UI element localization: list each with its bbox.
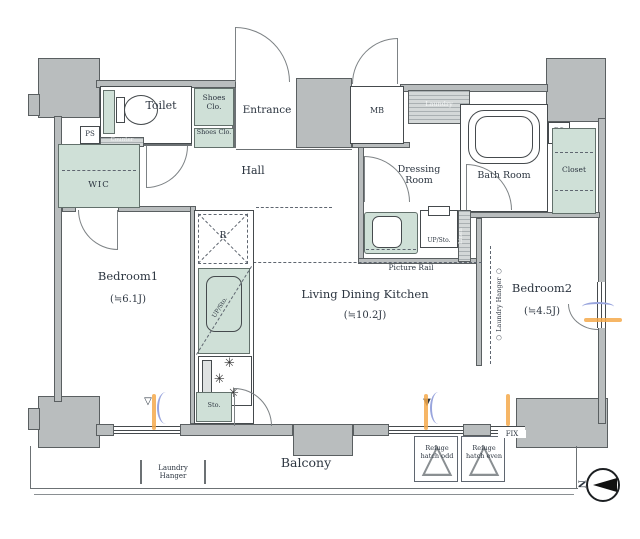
bedroom1-window (114, 426, 180, 434)
fix-window-label: FIX (498, 430, 526, 438)
shoes-closet-lower-label: Shoes Clo. (195, 129, 233, 137)
toilet-label: Toilet (134, 100, 188, 114)
refuge-hatch-odd-label: Refuge hatch odd (417, 445, 457, 460)
compass-arrow-icon (593, 478, 617, 492)
refuge-hatch-even-label: Refuge hatch even (464, 445, 504, 460)
bedroom1-door-arc (78, 210, 118, 250)
bedroom1-airflow-orange (152, 394, 156, 430)
wall-right-upper (598, 118, 606, 284)
fix-airflow-orange (506, 394, 510, 426)
mb-door-arc (352, 38, 398, 84)
balcony-laundry-hanger-label: Laundry Hanger (144, 464, 202, 481)
bedroom1-label: Bedroom1 (70, 270, 186, 284)
balcony-rail-outer (30, 488, 578, 489)
entrance-label: Entrance (236, 104, 298, 116)
refuge-hatch-odd-box: △ Refuge hatch odd (414, 436, 458, 482)
wic-closet (58, 144, 140, 208)
pillar-bottom-right (516, 398, 608, 448)
hall-label: Hall (230, 165, 276, 178)
mb-label: MB (360, 106, 394, 115)
bedroom2-laundry-hanger-label: ○ Laundry Hanger ○ (496, 250, 508, 360)
pillar-bottom-left (38, 396, 100, 448)
bedroom1-size: (≒6.1J) (70, 294, 186, 306)
pillar-notch-left-top (28, 94, 40, 116)
floor-plan: Toilet Counter PS WIC Shoes Clo. Shoes C… (0, 0, 640, 539)
picture-rail-label: Picture Rail (372, 264, 450, 273)
hanger-tick-left (140, 460, 142, 484)
ldk-airflow-blue (430, 392, 443, 424)
bedroom2-label: Bedroom2 (496, 282, 588, 296)
upper-storage-label: UP/Sto. (419, 237, 459, 244)
bedroom2-hanger-line (490, 246, 491, 364)
bedroom1-airflow-blue (157, 392, 171, 424)
closet-shelf-line-1 (555, 152, 593, 153)
closet-label: Closet (552, 166, 596, 175)
pillar-top-right (546, 58, 606, 122)
wall-right-lower (598, 326, 606, 424)
toilet-side-panel (103, 90, 115, 134)
ps-left-label: PS (80, 130, 100, 138)
kitchen-storage-label: Sto. (196, 402, 232, 410)
toilet-door-arc (146, 146, 188, 188)
hanger-tick-right (204, 460, 206, 484)
ldk-label: Living Dining Kitchen (280, 288, 450, 302)
burner-icon-1: ✳ (224, 356, 238, 370)
linen-strip-label: Linen (459, 212, 470, 260)
bedroom2-size: (≒4.5J) (496, 306, 588, 318)
refrigerator-label: R (198, 231, 248, 242)
closet-shelf-line-2 (555, 190, 593, 191)
dressing-door-arc (364, 156, 410, 202)
pillar-notch-left-bottom (28, 408, 40, 430)
compass-north-label: N (575, 478, 586, 490)
washbasin-mirror-line (366, 249, 416, 250)
pillar-bottom-middle (293, 424, 353, 456)
ldk-airflow-orange (424, 394, 428, 430)
wall-bedroom2-left (476, 218, 482, 366)
balcony-rail-inner (34, 494, 574, 495)
washer-unit-notch (428, 206, 450, 216)
balcony-rail-left (30, 446, 31, 488)
hall-ldk-open-boundary (256, 207, 332, 208)
wall-bottom-seg1 (96, 424, 114, 436)
bathtub-inner (475, 116, 533, 158)
ldk-size: (≒10.2J) (280, 310, 450, 322)
bedroom2-airflow-orange (584, 318, 622, 322)
wall-bottom-seg3 (353, 424, 389, 436)
toilet-counter-label: Counter (100, 138, 144, 144)
entrance-porch-block (296, 78, 352, 148)
wic-label: WIC (62, 180, 136, 190)
balcony-label: Balcony (268, 456, 344, 471)
burner-icon-2: ✳ (214, 372, 228, 386)
washbasin-bowl (372, 216, 402, 248)
wic-hanger-rod (62, 170, 136, 171)
pillar-top-left (38, 58, 100, 118)
shoes-closet-upper-label: Shoes Clo. (195, 94, 233, 112)
bedroom2-airflow-blue (582, 302, 614, 314)
refuge-hatch-even-box: △ Refuge hatch even (461, 436, 505, 482)
kitchen-side-door-arc (234, 388, 272, 426)
entrance-step-line (236, 149, 352, 150)
entrance-door-arc (235, 27, 290, 82)
